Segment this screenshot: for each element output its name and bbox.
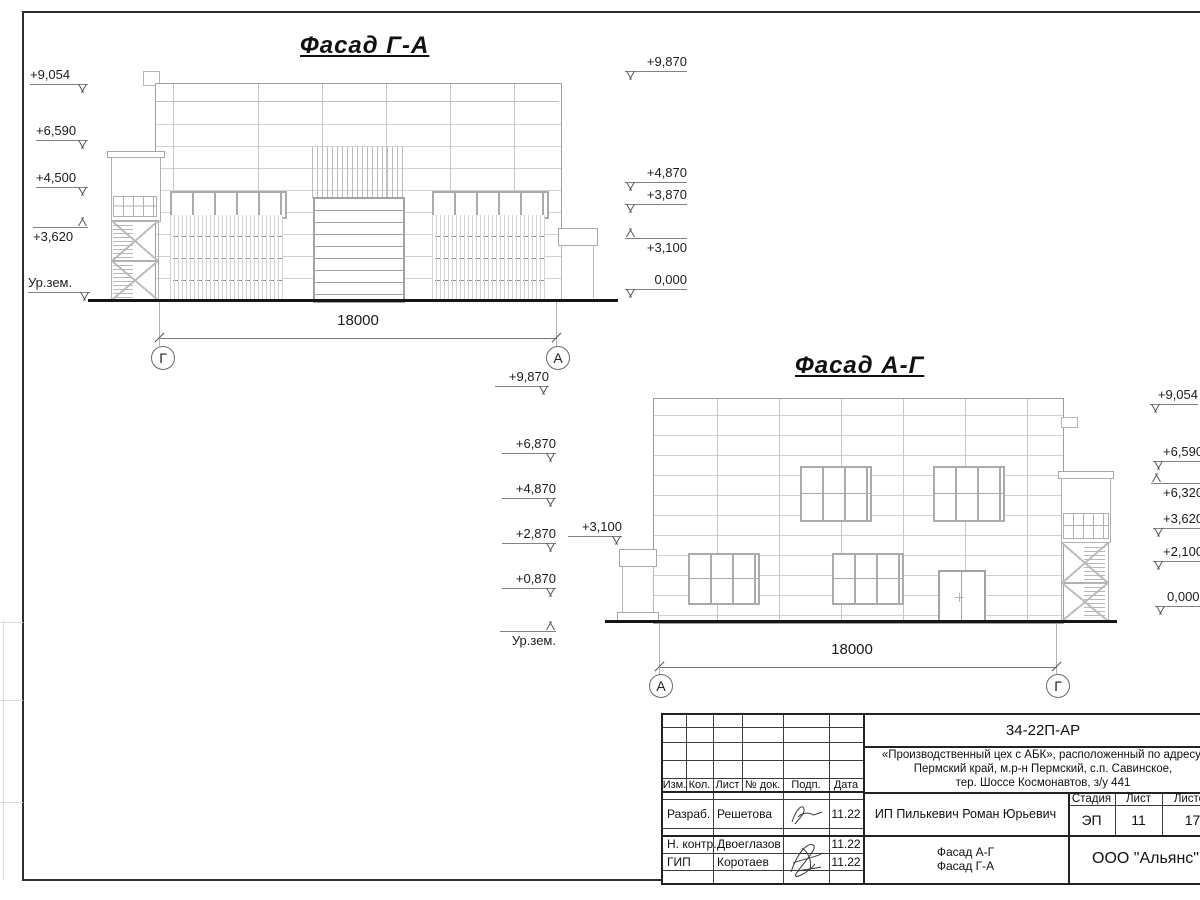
tb-stage-label: Стадия [1068,792,1115,805]
elevation-mark: +6,320 [1151,483,1200,503]
facade-ag-tower-stairs [1084,544,1105,618]
elevation-arrow-icon [1153,561,1164,570]
tb-role: ГИП [663,853,717,870]
elevation-value: +0,870 [516,571,556,586]
elevation-value: +9,054 [1158,387,1198,402]
facade-ga-ground-line [88,299,618,302]
elevation-arrow-icon [77,140,88,149]
facade-ga-title: Фасад Г-А [300,32,429,60]
title-block: Изм. Кол. Лист № док. Подп. Дата Разраб.… [661,713,1200,885]
elevation-mark: +3,100 [625,238,687,258]
tb-header-izm: Изм. [663,778,686,791]
dimension-value: 18000 [824,641,880,658]
tb-sheets-value: 17 [1162,805,1200,835]
axis-bubble: Г [151,346,175,370]
elevation-arrow-icon [611,536,622,545]
elevation-value: +3,870 [647,187,687,202]
elevation-arrow-icon [545,621,556,630]
elevation-mark: +4,500 [36,171,88,188]
tb-drawing-title-line1: Фасад А-Г [863,837,1068,859]
facade-ga-sectional-gate [313,197,405,303]
elevation-arrow-icon [1153,528,1164,537]
elevation-arrow-icon [538,386,549,395]
elevation-value: 0,000 [1167,589,1200,604]
tb-role: Разраб. [663,799,717,828]
tb-line [663,742,863,743]
signature [782,836,828,881]
elevation-mark: +9,054 [30,68,88,85]
facade-ga-tower-window [113,196,157,217]
tb-line [663,760,863,761]
elevation-arrow-icon [1150,404,1161,413]
elevation-value: +6,590 [36,123,76,138]
elevation-mark: +9,870 [495,370,549,387]
axis-bubble: А [649,674,673,698]
drawing-sheet: Фасад Г-А 18000 Г А +9,054 +6,590 +4,500… [0,0,1200,900]
binding-strip-line [3,620,4,880]
elevation-mark: +9,054 [1150,388,1198,405]
facade-ag-roof-tab [1061,417,1078,428]
elevation-value: +2,100 [1163,544,1200,559]
facade-ag-window-lower-right [832,553,904,605]
elevation-arrow-icon [545,543,556,552]
tb-name: Коротаев [713,853,787,870]
axis-bubble: А [546,346,570,370]
elevation-value: +3,100 [582,519,622,534]
facade-ga-louvers [312,147,403,198]
facade-ga-canopy-supports [561,245,594,298]
dimension-value: 18000 [330,312,386,329]
facade-ag-window-upper-left [800,466,872,522]
tb-header-list: Лист [713,778,742,791]
elevation-arrow-icon [77,84,88,93]
extension-line [556,302,557,346]
tb-line [663,828,863,829]
elevation-mark: Ур.зем. [28,276,90,293]
elevation-value: +4,870 [516,481,556,496]
elevation-mark: +9,870 [625,55,687,72]
door-handle-mark [955,593,964,602]
tb-header-kol: Кол. [686,778,713,791]
elevation-mark: +6,870 [502,437,556,454]
facade-ga-cladding-left [170,215,283,299]
tb-address-line1: «Производственный цех с АБК», расположен… [867,748,1200,762]
elevation-value: +3,100 [647,240,687,255]
tb-header-doc: № док. [742,778,783,791]
elevation-mark: +3,100 [568,520,622,537]
tb-name: Решетова [713,799,787,828]
elevation-value: Ур.зем. [512,633,556,648]
tb-sheet-label: Лист [1115,792,1162,805]
elevation-mark: +4,870 [502,482,556,499]
elevation-arrow-icon [77,217,88,226]
extension-line [159,302,160,346]
elevation-mark: Ур.зем. [500,631,556,651]
elevation-value: Ур.зем. [28,275,72,290]
elevation-value: +3,620 [1163,511,1200,526]
tb-address-line2: Пермский край, м.р-н Пермский, с.п. Сави… [867,762,1200,776]
elevation-mark: +2,100 [1153,545,1200,562]
tb-line [663,870,863,871]
binding-strip-line [0,700,23,701]
tb-header-podp: Подп. [783,778,829,791]
elevation-value: +9,870 [509,369,549,384]
elevation-mark: 0,000 [625,273,687,290]
tb-line [663,791,863,793]
elevation-arrow-icon [1153,461,1164,470]
tb-role: Н. контр. [663,835,717,853]
tb-sheet-value: 11 [1115,805,1162,835]
elevation-mark: +3,870 [625,188,687,205]
tb-stage-value: ЭП [1068,805,1115,835]
facade-ag-canopy-supports [622,566,654,612]
dimension-line [660,667,1057,668]
facade-ag-window-lower-left [688,553,760,605]
tb-address-line3: тер. Шоссе Космонавтов, з/у 441 [867,776,1200,790]
facade-ag-ground-line [605,620,1117,623]
tb-date: 11.22 [829,835,863,853]
elevation-arrow-icon [625,71,636,80]
facade-ga-tower-stairs [113,222,133,298]
elevation-value: +2,870 [516,526,556,541]
elevation-value: +9,054 [30,67,70,82]
elevation-arrow-icon [79,292,90,301]
tb-date: 11.22 [829,853,863,870]
binding-strip-line [0,622,23,623]
elevation-mark: +6,590 [1153,445,1200,462]
tb-header-data: Дата [829,778,863,791]
elevation-mark: +3,620 [33,227,88,247]
binding-strip-line [0,802,23,803]
facade-ga-parapet-line [156,101,559,102]
elevation-arrow-icon [1155,606,1166,615]
tb-sheets-label: Листов [1162,792,1200,805]
facade-ag-title: Фасад А-Г [795,352,924,380]
tb-line [663,727,863,728]
elevation-arrow-icon [545,498,556,507]
tb-name: Двоеглазов [713,835,787,853]
elevation-value: +9,870 [647,54,687,69]
axis-bubble: Г [1046,674,1070,698]
elevation-value: +4,500 [36,170,76,185]
elevation-value: +6,320 [1163,485,1200,500]
tb-date: 11.22 [829,799,863,828]
elevation-mark: +6,590 [36,124,88,141]
facade-ag-tower-window [1063,513,1109,539]
dimension-line [160,338,557,339]
elevation-arrow-icon [545,588,556,597]
elevation-mark: 0,000 [1155,590,1200,607]
elevation-arrow-icon [625,228,636,237]
frame-top [23,11,1200,13]
frame-left [22,11,24,881]
elevation-value: 0,000 [654,272,687,287]
elevation-arrow-icon [77,187,88,196]
elevation-arrow-icon [545,453,556,462]
facade-ag-window-upper-right [933,466,1005,522]
elevation-value: +3,620 [33,229,73,244]
tb-client: ИП Пилькевич Роман Юрьевич [863,792,1068,835]
tb-drawing-title-line2: Фасад Г-А [863,859,1068,875]
elevation-mark: +4,870 [625,166,687,183]
signature [785,801,827,827]
elevation-arrow-icon [1151,473,1162,482]
facade-ga-cladding-right [432,215,545,299]
tb-doc-code: 34-22П-АР [863,715,1200,746]
elevation-arrow-icon [625,204,636,213]
elevation-mark: +0,870 [502,572,556,589]
elevation-value: +4,870 [647,165,687,180]
elevation-arrow-icon [625,289,636,298]
elevation-value: +6,590 [1163,444,1200,459]
tb-company: ООО "Альянс" [1068,835,1200,883]
elevation-value: +6,870 [516,436,556,451]
facade-ga-canopy [558,228,598,246]
elevation-mark: +2,870 [502,527,556,544]
elevation-mark: +3,620 [1153,512,1200,529]
facade-ag-canopy [619,549,657,567]
